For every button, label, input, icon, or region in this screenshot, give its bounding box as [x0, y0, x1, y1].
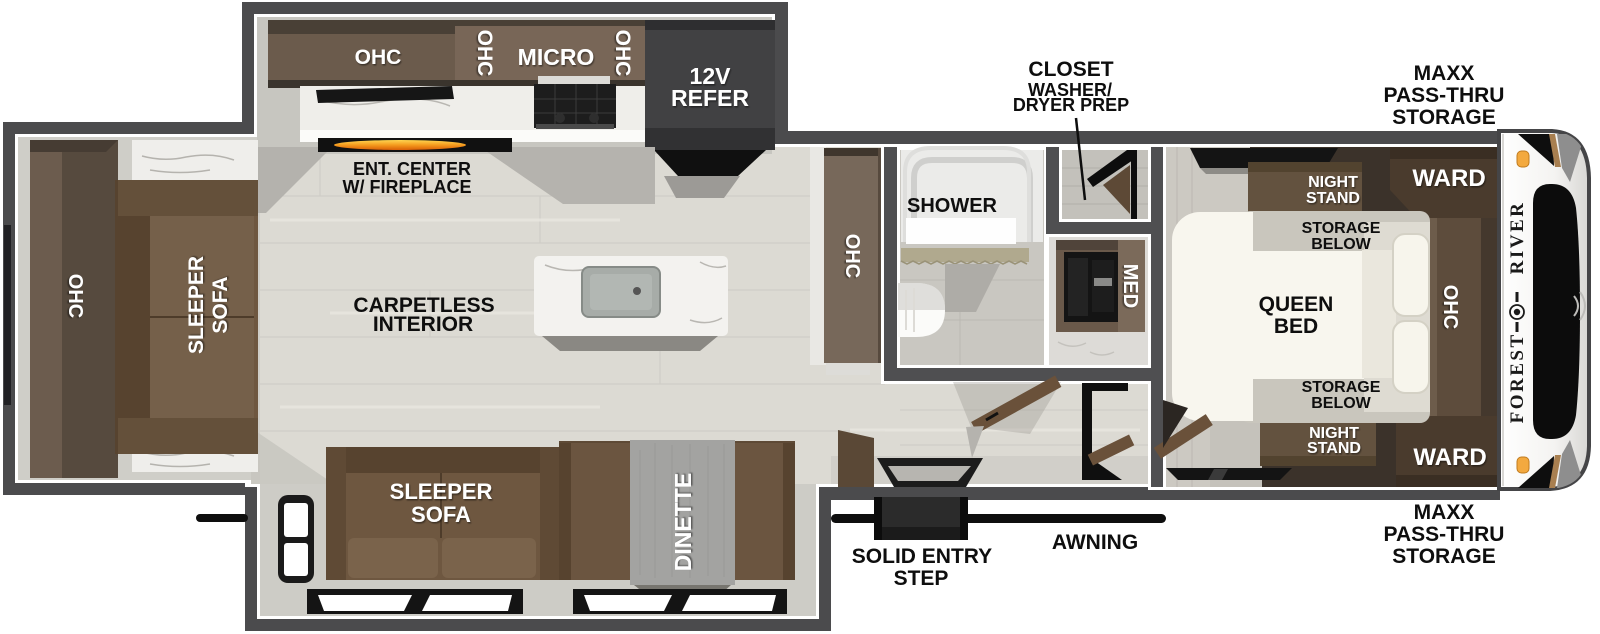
svg-text:DRYER PREP: DRYER PREP	[1013, 95, 1129, 115]
svg-text:MICRO: MICRO	[518, 44, 595, 70]
svg-text:DINETTE: DINETTE	[670, 473, 696, 571]
svg-text:OHC: OHC	[841, 234, 863, 278]
svg-text:NIGHT: NIGHT	[1308, 174, 1358, 191]
svg-text:BELOW: BELOW	[1311, 236, 1371, 253]
svg-text:OHC: OHC	[1439, 285, 1461, 329]
svg-text:MED: MED	[1119, 264, 1141, 308]
svg-text:STORAGE: STORAGE	[1302, 220, 1381, 237]
svg-text:SOFA: SOFA	[209, 276, 232, 333]
svg-text:OHC: OHC	[64, 274, 86, 318]
svg-text:STORAGE: STORAGE	[1392, 545, 1495, 568]
svg-text:STORAGE: STORAGE	[1392, 106, 1495, 129]
svg-text:WARD: WARD	[1413, 444, 1486, 471]
svg-text:REFER: REFER	[671, 85, 749, 111]
svg-text:INTERIOR: INTERIOR	[373, 313, 473, 336]
svg-text:SOFA: SOFA	[411, 502, 471, 527]
svg-text:STEP: STEP	[894, 567, 949, 590]
svg-text:PASS-THRU: PASS-THRU	[1384, 523, 1505, 546]
svg-text:SHOWER: SHOWER	[907, 195, 998, 217]
svg-text:SLEEPER: SLEEPER	[185, 256, 208, 354]
svg-text:SOLID ENTRY: SOLID ENTRY	[852, 545, 992, 568]
svg-text:PASS-THRU: PASS-THRU	[1384, 84, 1505, 107]
svg-text:STORAGE: STORAGE	[1302, 379, 1381, 396]
svg-text:SLEEPER: SLEEPER	[390, 479, 493, 504]
svg-text:OHC: OHC	[473, 30, 496, 77]
svg-text:WARD: WARD	[1412, 165, 1485, 192]
svg-text:W/ FIREPLACE: W/ FIREPLACE	[343, 177, 472, 197]
svg-text:OHC: OHC	[355, 46, 402, 69]
svg-text:MAXX: MAXX	[1414, 501, 1475, 524]
svg-text:ENT. CENTER: ENT. CENTER	[353, 159, 471, 179]
svg-text:MAXX: MAXX	[1414, 62, 1475, 85]
svg-text:BED: BED	[1274, 315, 1318, 338]
svg-text:QUEEN: QUEEN	[1259, 293, 1334, 316]
svg-text:BELOW: BELOW	[1311, 395, 1371, 412]
svg-text:OHC: OHC	[611, 30, 634, 77]
svg-text:AWNING: AWNING	[1052, 531, 1138, 554]
svg-text:CLOSET: CLOSET	[1028, 58, 1113, 81]
svg-text:STAND: STAND	[1306, 190, 1360, 207]
svg-text:STAND: STAND	[1307, 440, 1361, 457]
